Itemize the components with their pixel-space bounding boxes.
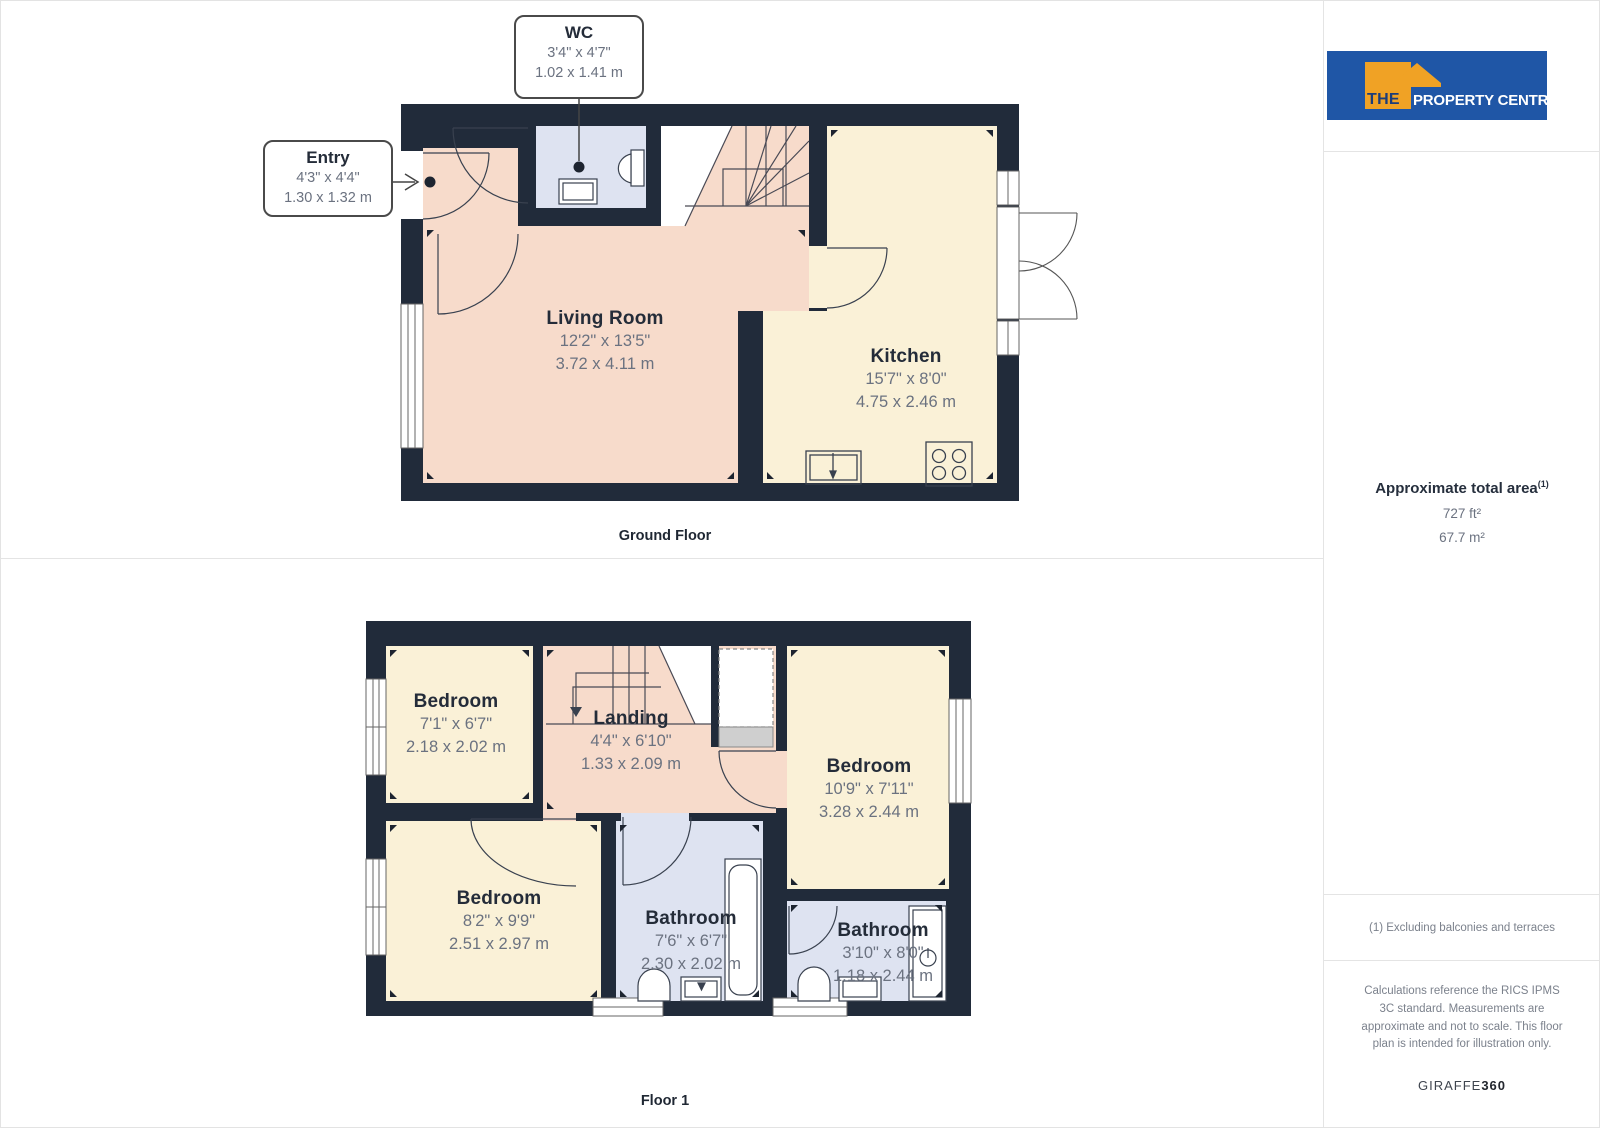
floorplan-page: WC 3'4" x 4'7" 1.02 x 1.41 m Entry 4'3" … <box>0 0 1600 1128</box>
logo-graphic <box>1327 51 1547 120</box>
area-metric: 67.7 m² <box>1323 530 1600 545</box>
area-title: Approximate total area(1) <box>1323 479 1600 497</box>
callout-entry: Entry 4'3" x 4'4" 1.30 x 1.32 m <box>263 140 393 217</box>
area-footnote-marker: (1) <box>1538 479 1549 489</box>
kitchen-window-top-icon <box>997 171 1019 205</box>
room-label-bathroom-1: Bathroom 7'6" x 6'7" 2.30 x 2.02 m <box>641 908 741 976</box>
room-label-landing: Landing 4'4" x 6'10" 1.33 x 2.09 m <box>581 708 681 776</box>
area-footnote: (1) Excluding balconies and terraces <box>1323 922 1600 934</box>
bathroom-right-toilet-icon <box>798 967 830 1001</box>
callout-wc: WC 3'4" x 4'7" 1.02 x 1.41 m <box>514 15 644 99</box>
room-label-bedroom-1: Bedroom 7'1" x 6'7" 2.18 x 2.02 m <box>406 691 506 759</box>
callout-imperial-dims: 3'4" x 4'7" <box>516 43 642 63</box>
floorplan-drawing <box>1 1 1600 1128</box>
credit-suffix: 360 <box>1481 1078 1506 1093</box>
living-room-window-icon <box>401 304 423 448</box>
stairs-cupboard-wall <box>711 646 719 747</box>
callout-room-name: Entry <box>265 148 391 168</box>
approximate-total-area: Approximate total area(1) 727 ft² 67.7 m… <box>1323 479 1600 545</box>
kitchen-window-bottom-icon <box>997 321 1019 355</box>
callout-metric-dims: 1.02 x 1.41 m <box>516 63 642 83</box>
bedroom-bl-window-icon <box>366 859 386 955</box>
floor-1-label: Floor 1 <box>641 1093 689 1109</box>
room-label-living-room: Living Room 12'2" x 13'5" 3.72 x 4.11 m <box>546 308 663 376</box>
room-label-bathroom-2: Bathroom 3'10" x 8'0" 1.18 x 2.44 m <box>833 920 933 988</box>
callout-imperial-dims: 4'3" x 4'4" <box>265 168 391 188</box>
ground-floor-plan <box>393 99 1077 501</box>
room-label-kitchen: Kitchen 15'7" x 8'0" 4.75 x 2.46 m <box>856 346 956 414</box>
cupboard-icon <box>719 649 773 747</box>
disclaimer-text: Calculations reference the RICS IPMS 3C … <box>1357 983 1567 1054</box>
wc-sink-icon <box>559 179 597 204</box>
room-label-bedroom-3: Bedroom 8'2" x 9'9" 2.51 x 2.97 m <box>449 888 549 956</box>
logo-the-text: THE <box>1367 91 1400 109</box>
bedroom-tl-window-icon <box>366 679 386 775</box>
area-imperial: 727 ft² <box>1323 506 1600 521</box>
kitchen-french-doors-icon <box>997 207 1077 319</box>
giraffe360-credit: GIRAFFE360 <box>1323 1078 1600 1093</box>
callout-metric-dims: 1.30 x 1.32 m <box>265 188 391 208</box>
bedroom-right-window-icon <box>949 699 971 803</box>
logo-property-centre-text: PROPERTY CENTRE <box>1413 92 1558 109</box>
credit-brand: GIRAFFE <box>1418 1078 1481 1093</box>
callout-room-name: WC <box>516 23 642 43</box>
ground-floor-label: Ground Floor <box>619 528 712 544</box>
bathroom-mid-sink-icon <box>681 977 721 1001</box>
property-centre-logo: THE PROPERTY CENTRE <box>1327 51 1547 120</box>
room-label-bedroom-2: Bedroom 10'9" x 7'11" 3.28 x 2.44 m <box>819 756 919 824</box>
